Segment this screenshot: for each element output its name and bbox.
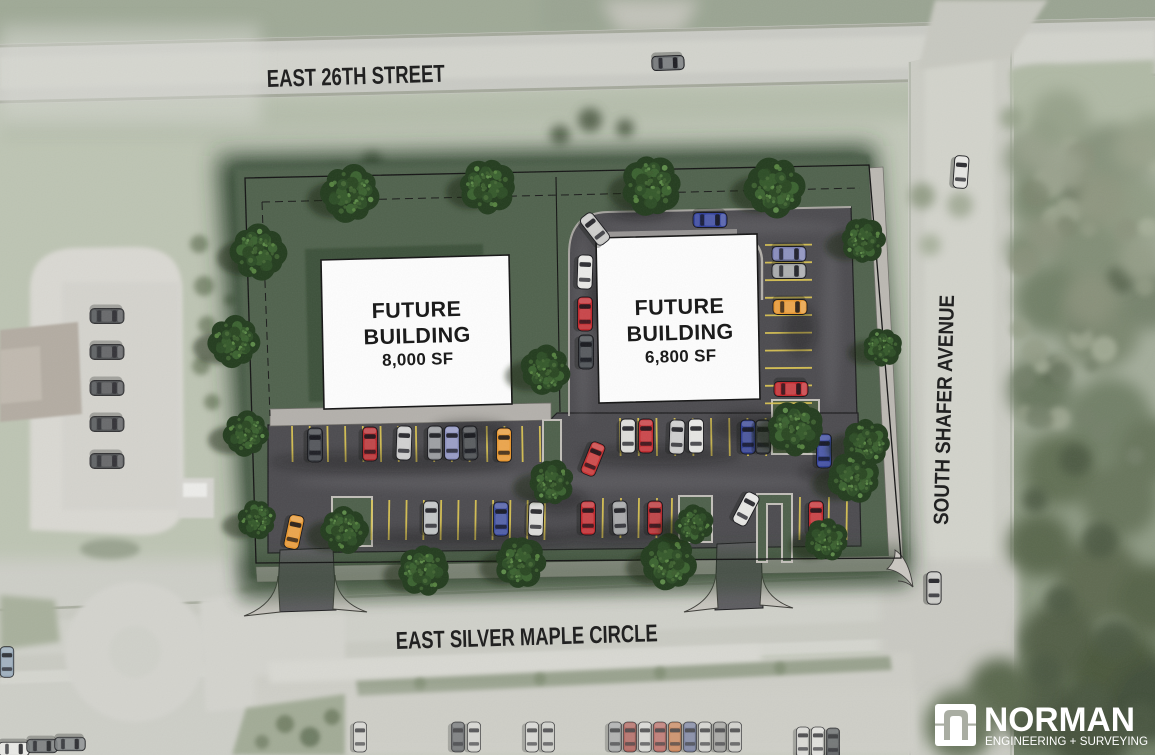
svg-text:ENGINEERING + SURVEYING: ENGINEERING + SURVEYING [985,734,1148,748]
